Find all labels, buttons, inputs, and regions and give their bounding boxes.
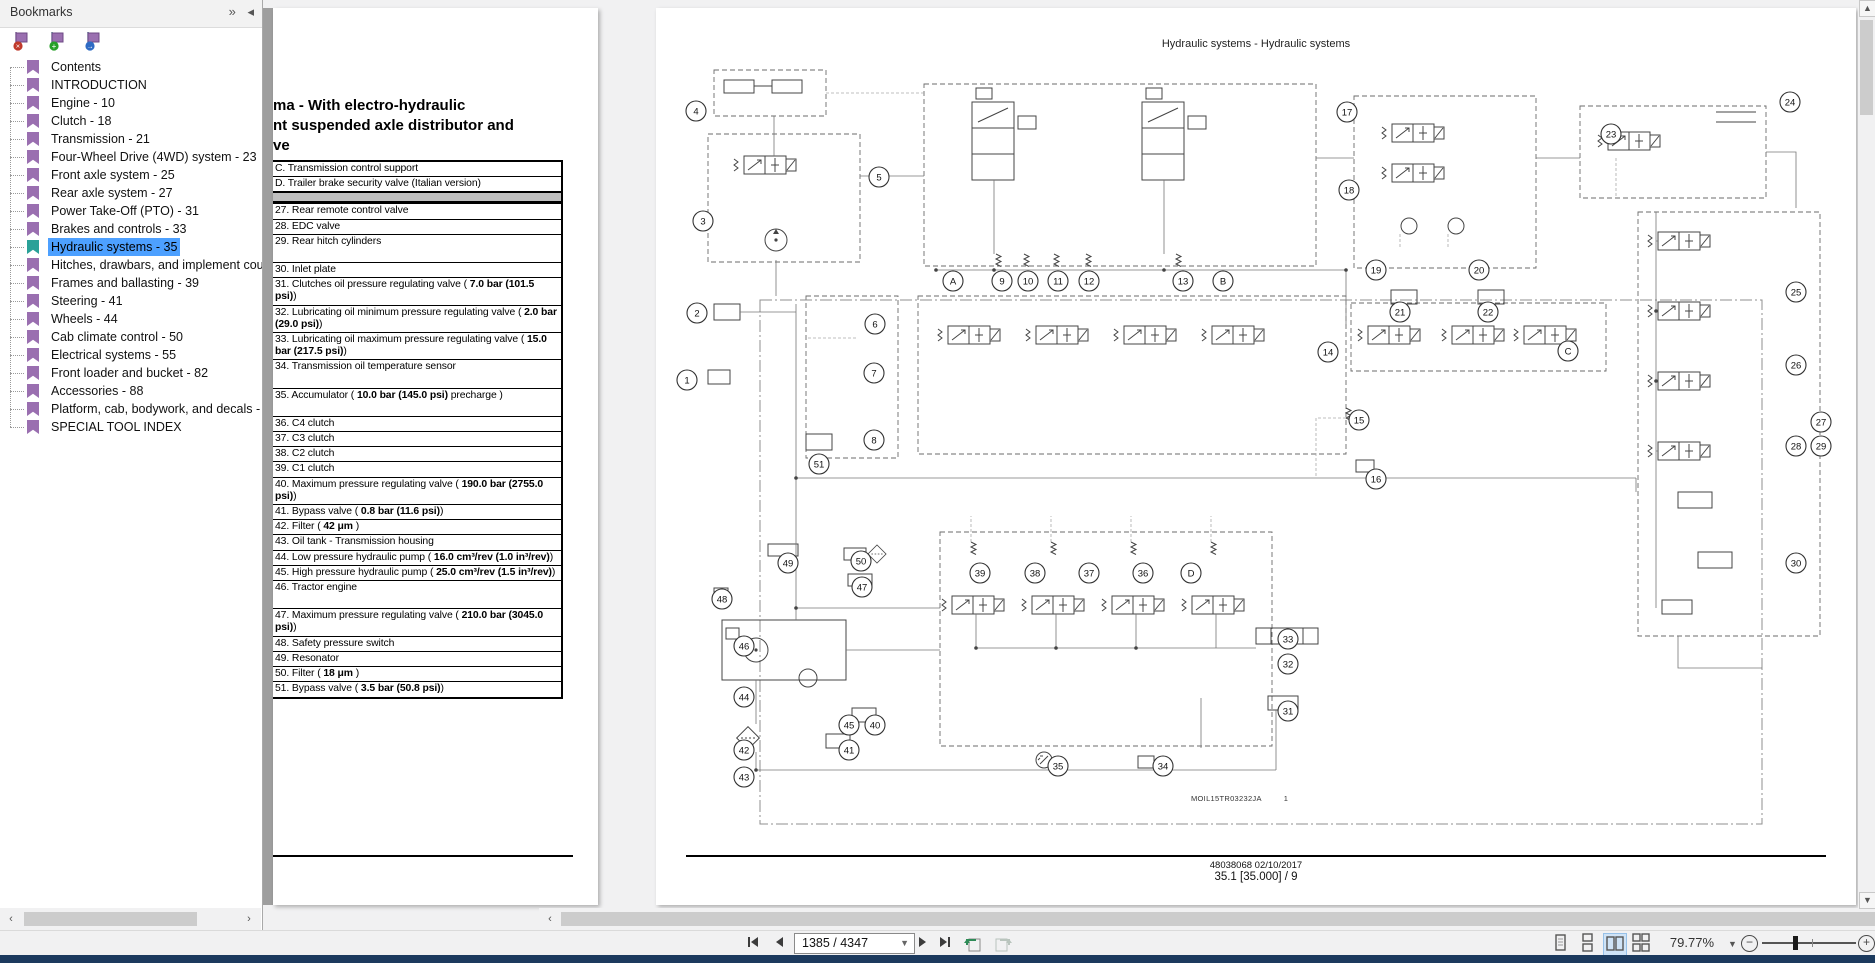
legend-row: 37. C3 clutch xyxy=(273,431,561,446)
next-view-icon[interactable] xyxy=(992,935,1014,951)
scroll-up-icon[interactable]: ▲ xyxy=(1859,0,1875,17)
bottom-toolbar: 1385 / 4347 ▼ xyxy=(0,930,1875,956)
legend-table: C. Transmission control supportD. Traile… xyxy=(273,160,563,699)
svg-text:4: 4 xyxy=(693,106,698,117)
delete-bookmark-icon[interactable]: × xyxy=(10,30,32,52)
document-vertical-scrollbar[interactable]: ▲ ▼ xyxy=(1858,0,1875,908)
document-pane: ma - With electro-hydraulic nt suspended… xyxy=(263,0,1875,930)
section-page-number: 35.1 [35.000] / 9 xyxy=(656,871,1856,883)
zoom-in-icon[interactable]: + xyxy=(1858,935,1875,952)
legend-row: D. Trailer brake security valve (Italian… xyxy=(273,176,561,191)
svg-text:30: 30 xyxy=(1791,558,1802,569)
svg-text:D: D xyxy=(1188,568,1195,579)
legend-row: 39. C1 clutch xyxy=(273,461,561,476)
bookmark-label: INTRODUCTION xyxy=(48,76,150,94)
legend-row: C. Transmission control support xyxy=(273,162,561,176)
bookmarks-horizontal-scrollbar[interactable]: ‹ › xyxy=(0,908,261,930)
svg-text:28: 28 xyxy=(1791,441,1802,452)
legend-row: 34. Transmission oil temperature sensor xyxy=(273,359,561,387)
zoom-dropdown-icon[interactable]: ▼ xyxy=(1728,939,1737,949)
svg-text:27: 27 xyxy=(1816,417,1827,428)
bookmark-ribbon-icon xyxy=(27,276,39,290)
bookmark-ribbon-icon xyxy=(27,150,39,164)
svg-text:24: 24 xyxy=(1785,97,1796,108)
svg-text:+: + xyxy=(52,42,57,51)
zoom-level-value: 79.77% xyxy=(1658,935,1714,950)
bookmark-item[interactable]: Frames and ballasting - 39 xyxy=(0,274,262,292)
bookmark-label: Hydraulic systems - 35 xyxy=(48,238,180,256)
bookmark-label: Steering - 41 xyxy=(48,292,126,310)
bookmark-item[interactable]: Platform, cab, bodywork, and decals - xyxy=(0,400,262,418)
svg-text:10: 10 xyxy=(1023,276,1034,287)
collapse-panel-icon[interactable]: ◂ xyxy=(247,4,254,19)
bookmark-item[interactable]: Front loader and bucket - 82 xyxy=(0,364,262,382)
bookmark-ribbon-icon xyxy=(27,312,39,326)
bookmark-label: Rear axle system - 27 xyxy=(48,184,176,202)
scrollbar-thumb[interactable] xyxy=(24,912,197,926)
bookmark-label: SPECIAL TOOL INDEX xyxy=(48,418,185,436)
continuous-view-icon[interactable] xyxy=(1576,933,1598,954)
dock-panel-icon[interactable]: » xyxy=(229,4,236,19)
svg-text:26: 26 xyxy=(1791,360,1802,371)
bookmark-list: ContentsINTRODUCTIONEngine - 10Clutch - … xyxy=(0,58,262,436)
legend-row: 42. Filter ( 42 μm ) xyxy=(273,519,561,534)
bookmarks-panel: Bookmarks » ◂ × + xyxy=(0,0,263,930)
first-page-icon[interactable] xyxy=(746,935,764,951)
svg-text:7: 7 xyxy=(871,368,876,379)
legend-row: 47. Maximum pressure regulating valve ( … xyxy=(273,608,561,635)
svg-text:42: 42 xyxy=(739,745,750,756)
legend-row: 45. High pressure hydraulic pump ( 25.0 … xyxy=(273,565,561,580)
two-page-scroll-view-icon[interactable] xyxy=(1630,933,1652,954)
legend-row: 51. Bypass valve ( 3.5 bar (50.8 psi)) xyxy=(273,681,561,696)
diagram-reference: MOIL15TR03232JA1 xyxy=(1191,794,1288,803)
diagram-callouts: 4531724231821678A910111213B19202122C1415… xyxy=(677,92,1831,787)
zoom-slider-tick xyxy=(1812,939,1813,947)
svg-text:23: 23 xyxy=(1606,129,1617,140)
legend-row: 49. Resonator xyxy=(273,651,561,666)
bookmark-item[interactable]: Front axle system - 25 xyxy=(0,166,262,184)
svg-text:44: 44 xyxy=(739,692,750,703)
svg-text:B: B xyxy=(1220,276,1226,287)
bookmark-ribbon-icon xyxy=(27,348,39,362)
scroll-down-icon[interactable]: ▼ xyxy=(1859,892,1875,909)
legend-row: 29. Rear hitch cylinders xyxy=(273,234,561,262)
svg-text:2: 2 xyxy=(694,308,699,319)
bookmark-label: Hitches, drawbars, and implement cou xyxy=(48,256,262,274)
svg-text:33: 33 xyxy=(1283,634,1294,645)
two-page-view-icon[interactable] xyxy=(1603,933,1627,956)
scroll-right-icon[interactable]: › xyxy=(242,911,256,927)
bookmark-item[interactable]: Clutch - 18 xyxy=(0,112,262,130)
bookmark-ribbon-icon xyxy=(27,258,39,272)
bookmark-label: Frames and ballasting - 39 xyxy=(48,274,202,292)
svg-text:17: 17 xyxy=(1342,107,1353,118)
bookmark-item[interactable]: INTRODUCTION xyxy=(0,76,262,94)
bookmark-ribbon-icon xyxy=(27,240,39,254)
bookmark-ribbon-icon xyxy=(27,330,39,344)
svg-text:50: 50 xyxy=(856,556,867,567)
legend-row: 48. Safety pressure switch xyxy=(273,636,561,651)
hydraulic-schematic: 4531724231821678A910111213B19202122C1415… xyxy=(656,8,1856,905)
svg-text:41: 41 xyxy=(844,745,855,756)
bookmark-item[interactable]: Power Take-Off (PTO) - 31 xyxy=(0,202,262,220)
svg-text:5: 5 xyxy=(876,172,881,183)
document-page-right: Hydraulic systems - Hydraulic systems xyxy=(656,8,1856,905)
document-page-left: ma - With electro-hydraulic nt suspended… xyxy=(273,8,598,905)
legend-row: 44. Low pressure hydraulic pump ( 16.0 c… xyxy=(273,550,561,565)
bookmark-item[interactable]: Cab climate control - 50 xyxy=(0,328,262,346)
bookmark-item[interactable]: Wheels - 44 xyxy=(0,310,262,328)
svg-text:35: 35 xyxy=(1053,761,1064,772)
svg-text:20: 20 xyxy=(1474,265,1485,276)
legend-row: 33. Lubricating oil maximum pressure reg… xyxy=(273,332,561,359)
bookmark-label: Electrical systems - 55 xyxy=(48,346,179,364)
bookmark-item[interactable]: SPECIAL TOOL INDEX xyxy=(0,418,262,436)
previous-page-icon[interactable] xyxy=(772,935,790,951)
svg-text:31: 31 xyxy=(1283,706,1294,717)
svg-text:6: 6 xyxy=(872,319,877,330)
svg-text:25: 25 xyxy=(1791,287,1802,298)
page-number-field[interactable]: 1385 / 4347 ▼ xyxy=(794,933,915,954)
svg-text:13: 13 xyxy=(1178,276,1189,287)
bookmark-label: Brakes and controls - 33 xyxy=(48,220,190,238)
svg-text:3: 3 xyxy=(700,216,705,227)
bookmark-item[interactable]: Accessories - 88 xyxy=(0,382,262,400)
legend-row: 43. Oil tank - Transmission housing xyxy=(273,534,561,549)
bookmark-label: Power Take-Off (PTO) - 31 xyxy=(48,202,202,220)
bookmark-ribbon-icon xyxy=(27,78,39,92)
svg-text:34: 34 xyxy=(1158,761,1169,772)
zoom-slider-handle[interactable] xyxy=(1793,936,1798,950)
bookmark-item[interactable]: Brakes and controls - 33 xyxy=(0,220,262,238)
svg-text:11: 11 xyxy=(1053,276,1063,287)
bookmark-item[interactable]: Rear axle system - 27 xyxy=(0,184,262,202)
zoom-out-icon[interactable]: − xyxy=(1741,935,1758,952)
single-page-view-icon[interactable] xyxy=(1549,933,1571,954)
bookmark-label: Transmission - 21 xyxy=(48,130,153,148)
section-title: ma - With electro-hydraulic nt suspended… xyxy=(273,96,593,156)
svg-text:14: 14 xyxy=(1323,347,1334,358)
bookmark-label: Accessories - 88 xyxy=(48,382,146,400)
bookmark-ribbon-icon xyxy=(27,60,39,74)
svg-text:45: 45 xyxy=(844,720,855,731)
legend-row: 36. C4 clutch xyxy=(273,416,561,431)
svg-text:51: 51 xyxy=(814,459,825,470)
bookmark-label: Platform, cab, bodywork, and decals - xyxy=(48,400,262,418)
bookmark-ribbon-icon xyxy=(27,384,39,398)
bookmark-ribbon-icon xyxy=(27,366,39,380)
clipped-page-edge xyxy=(263,8,273,905)
legend-separator xyxy=(273,191,561,203)
svg-text:37: 37 xyxy=(1084,568,1095,579)
bookmark-label: Front axle system - 25 xyxy=(48,166,178,184)
pdf-viewer-window: Bookmarks » ◂ × + xyxy=(0,0,1875,963)
bookmark-ribbon-icon xyxy=(27,420,39,434)
footer-rule xyxy=(686,855,1826,857)
zoom-slider[interactable] xyxy=(1762,942,1856,944)
scroll-left-icon[interactable]: ‹ xyxy=(543,911,557,927)
bookmarks-toolbar: × + → xyxy=(10,30,104,56)
bookmark-item[interactable]: Hitches, drawbars, and implement cou xyxy=(0,256,262,274)
bookmark-ribbon-icon xyxy=(27,186,39,200)
svg-text:39: 39 xyxy=(975,568,986,579)
bookmark-label: Four-Wheel Drive (4WD) system - 23 xyxy=(48,148,260,166)
legend-row: 46. Tractor engine xyxy=(273,580,561,608)
svg-text:29: 29 xyxy=(1816,441,1827,452)
bookmark-label: Front loader and bucket - 82 xyxy=(48,364,211,382)
svg-text:48: 48 xyxy=(717,594,728,605)
svg-text:43: 43 xyxy=(739,772,750,783)
bookmark-ribbon-icon xyxy=(27,294,39,308)
bookmarks-panel-title: Bookmarks xyxy=(10,5,73,19)
bookmark-label: Cab climate control - 50 xyxy=(48,328,186,346)
svg-text:40: 40 xyxy=(870,720,881,731)
bookmark-item[interactable]: Electrical systems - 55 xyxy=(0,346,262,364)
svg-text:16: 16 xyxy=(1371,474,1382,485)
bookmark-item[interactable]: Four-Wheel Drive (4WD) system - 23 xyxy=(0,148,262,166)
svg-text:×: × xyxy=(16,42,20,51)
legend-row: 41. Bypass valve ( 0.8 bar (11.6 psi)) xyxy=(273,504,561,519)
goto-bookmark-icon[interactable]: → xyxy=(82,30,104,52)
bookmark-item[interactable]: Contents xyxy=(0,58,262,76)
page-field-dropdown-icon[interactable]: ▼ xyxy=(900,934,909,953)
svg-text:1: 1 xyxy=(684,375,689,386)
svg-text:38: 38 xyxy=(1030,568,1041,579)
svg-text:12: 12 xyxy=(1084,276,1095,287)
svg-text:C: C xyxy=(1565,346,1572,357)
legend-row: 50. Filter ( 18 μm ) xyxy=(273,666,561,681)
bookmarks-panel-header: Bookmarks » ◂ xyxy=(0,0,262,28)
bookmark-label: Clutch - 18 xyxy=(48,112,114,130)
footer-rule xyxy=(273,855,573,857)
status-bar xyxy=(0,955,1875,963)
bookmark-ribbon-icon xyxy=(27,204,39,218)
svg-text:8: 8 xyxy=(871,435,876,446)
svg-text:A: A xyxy=(950,276,957,287)
svg-text:9: 9 xyxy=(999,276,1004,287)
svg-text:36: 36 xyxy=(1138,568,1149,579)
svg-text:21: 21 xyxy=(1395,307,1406,318)
last-page-icon[interactable] xyxy=(938,935,956,951)
svg-text:18: 18 xyxy=(1344,185,1355,196)
legend-row: 32. Lubricating oil minimum pressure reg… xyxy=(273,305,561,332)
legend-row: 40. Maximum pressure regulating valve ( … xyxy=(273,477,561,504)
svg-text:15: 15 xyxy=(1354,415,1365,426)
bookmark-item[interactable]: Steering - 41 xyxy=(0,292,262,310)
svg-text:32: 32 xyxy=(1283,659,1294,670)
scrollbar-thumb[interactable] xyxy=(1860,20,1873,115)
document-horizontal-scrollbar[interactable]: ‹ › xyxy=(539,908,1875,930)
scrollbar-thumb[interactable] xyxy=(561,912,1875,926)
bookmark-ribbon-icon xyxy=(27,132,39,146)
bookmark-ribbon-icon xyxy=(27,402,39,416)
svg-text:19: 19 xyxy=(1371,265,1382,276)
bookmark-label: Engine - 10 xyxy=(48,94,118,112)
legend-row: 28. EDC valve xyxy=(273,219,561,234)
scroll-left-icon[interactable]: ‹ xyxy=(4,911,18,927)
add-bookmark-icon[interactable]: + xyxy=(46,30,68,52)
svg-text:47: 47 xyxy=(857,582,868,593)
svg-text:46: 46 xyxy=(739,641,750,652)
bookmark-item[interactable]: Hydraulic systems - 35 xyxy=(0,238,262,256)
legend-row: 27. Rear remote control valve xyxy=(273,203,561,218)
bookmark-label: Contents xyxy=(48,58,104,76)
previous-view-icon[interactable] xyxy=(964,935,986,951)
bookmark-item[interactable]: Transmission - 21 xyxy=(0,130,262,148)
bookmark-ribbon-icon xyxy=(27,222,39,236)
bookmark-label: Wheels - 44 xyxy=(48,310,121,328)
next-page-icon[interactable] xyxy=(916,935,934,951)
svg-text:22: 22 xyxy=(1483,307,1494,318)
svg-text:→: → xyxy=(87,44,94,51)
legend-row: 30. Inlet plate xyxy=(273,262,561,277)
legend-row: 38. C2 clutch xyxy=(273,446,561,461)
legend-row: 31. Clutches oil pressure regulating val… xyxy=(273,277,561,304)
document-number: 48038068 02/10/2017 xyxy=(656,860,1856,871)
svg-text:49: 49 xyxy=(783,558,794,569)
bookmark-ribbon-icon xyxy=(27,114,39,128)
bookmark-ribbon-icon xyxy=(27,96,39,110)
bookmark-item[interactable]: Engine - 10 xyxy=(0,94,262,112)
legend-row: 35. Accumulator ( 10.0 bar (145.0 psi) p… xyxy=(273,388,561,416)
bookmark-ribbon-icon xyxy=(27,168,39,182)
